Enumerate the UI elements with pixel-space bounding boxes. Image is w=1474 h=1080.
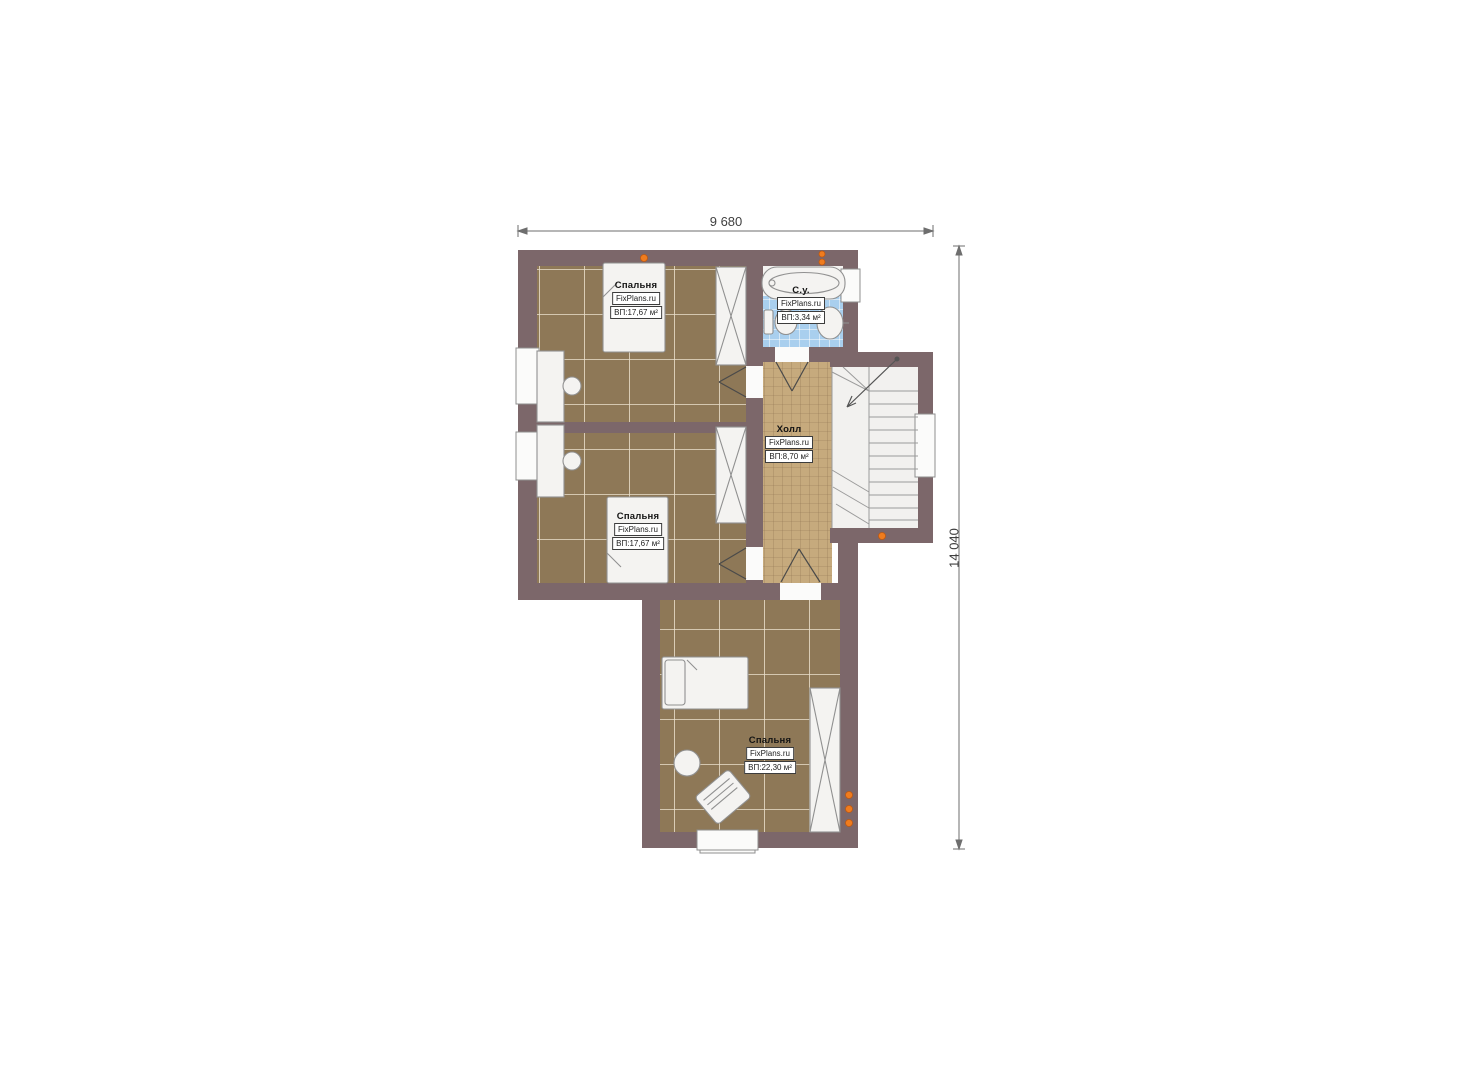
pillow-bedroom3 <box>665 660 685 705</box>
window-bedroom3-bottom <box>697 830 758 850</box>
dimension-arrow <box>518 228 527 234</box>
wall-left <box>518 250 537 600</box>
desk-bedroom1 <box>537 351 564 422</box>
door-opening-bedroom1 <box>746 366 763 398</box>
radiator-dot <box>846 820 853 827</box>
bed-bedroom2 <box>607 497 668 583</box>
wall-bedroom-divider <box>537 422 746 433</box>
radiator-dot <box>641 255 648 262</box>
window-sill-bedroom3 <box>700 850 755 853</box>
wall-bedroom3-left <box>642 583 660 848</box>
dimension-arrow <box>924 228 933 234</box>
desk-bedroom2 <box>537 425 564 497</box>
door-opening-bathroom <box>775 347 809 362</box>
floor-plan-drawing <box>0 0 1474 1080</box>
bathtub-basin <box>769 273 839 294</box>
radiator-dot <box>846 792 853 799</box>
window-stairwell-right <box>915 414 935 477</box>
door-opening-bedroom3 <box>780 583 821 600</box>
wall-bedroom3-top <box>642 583 858 600</box>
radiator-dot <box>819 259 825 265</box>
sink <box>817 307 843 339</box>
radiator-dot <box>819 251 825 257</box>
chair-bedroom1 <box>563 377 581 395</box>
round-table-bedroom3 <box>674 750 700 776</box>
dimension-label-height: 14 040 <box>947 528 962 568</box>
dimension-arrow <box>956 246 962 255</box>
floor-plan-page: 9 680 14 040 Спальня FixPlans.ru ВП:17,6… <box>0 0 1474 1080</box>
toilet-bowl <box>775 310 797 335</box>
door-opening-bedroom2 <box>746 547 763 580</box>
window-bedroom1-left <box>516 348 539 404</box>
radiator-dot <box>846 806 853 813</box>
toilet-tank <box>764 310 773 334</box>
wall-top <box>518 250 858 266</box>
wall-stair-top <box>830 352 933 367</box>
wall-bathroom-right <box>843 250 858 362</box>
chair-bedroom2 <box>563 452 581 470</box>
bathtub-drain <box>769 280 775 286</box>
window-bedroom2-left <box>516 432 539 480</box>
hall-floor <box>763 362 832 583</box>
dimension-arrow <box>956 840 962 849</box>
radiator-dot <box>879 533 886 540</box>
bed-bedroom1 <box>603 263 665 352</box>
dimension-label-width: 9 680 <box>710 214 743 229</box>
